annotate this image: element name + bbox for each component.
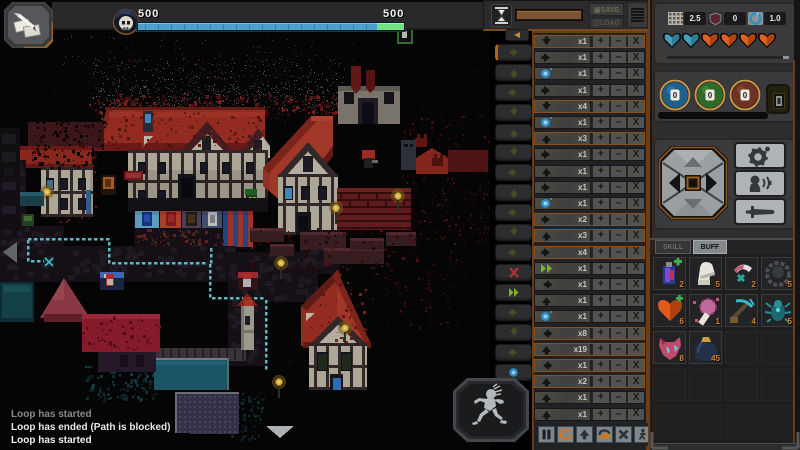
svg-text:0: 0 — [708, 91, 713, 100]
svg-text:0: 0 — [673, 91, 678, 100]
svg-text:0: 0 — [743, 91, 748, 100]
